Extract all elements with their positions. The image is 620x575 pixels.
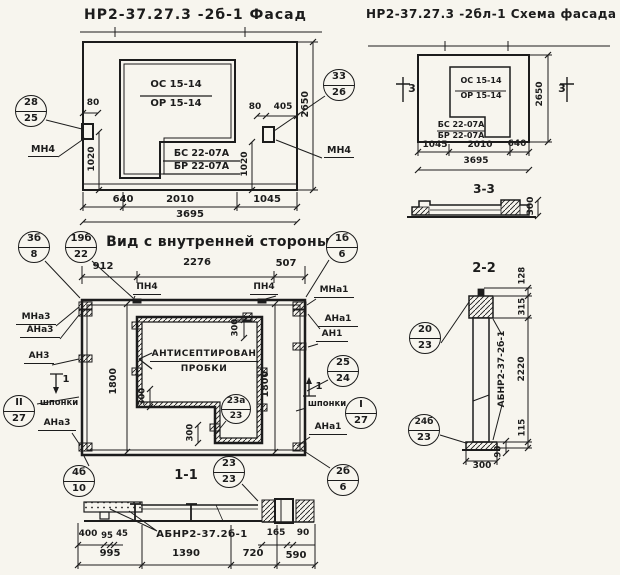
- inner-dim-507: 507: [266, 258, 306, 269]
- callout-top-value: 28: [16, 96, 46, 112]
- inner-dim-1800-right: 1800: [261, 369, 271, 399]
- section-1-1-title: 1-1: [166, 469, 206, 483]
- scheme-window-mark-bottom: ОР 15-14: [456, 92, 506, 101]
- callout-top-value: II: [4, 396, 34, 412]
- inner-dim-300-mid-left: 300: [138, 382, 147, 412]
- label-ana3-bottom: АНа3: [38, 419, 76, 431]
- callout-inner-bottom-right-2b-6: 2б 6: [327, 464, 359, 496]
- scheme-cut-mark-3-right: 3: [555, 83, 569, 95]
- label-an3: АН3: [24, 352, 54, 364]
- facade-dim-1020-left: 1020: [88, 144, 98, 174]
- section-3-3-title: 3-3: [466, 183, 502, 196]
- inner-dim-1800-left: 1800: [109, 366, 119, 396]
- s22-dim-315: 315: [518, 292, 527, 322]
- callout-top-value: 20: [410, 323, 440, 339]
- callout-top-value: 25: [328, 356, 358, 372]
- facade-dim-3695: 3695: [159, 209, 221, 220]
- s11-dim-45: 45: [113, 530, 131, 539]
- callout-facade-left-28-25: 28 25: [15, 95, 47, 127]
- callout-bottom-value: 8: [19, 248, 49, 263]
- callout-inner-25-24: 25 24: [327, 355, 359, 387]
- callout-top-value: I: [346, 398, 376, 414]
- callout-section22-20-23: 20 23: [409, 322, 441, 354]
- anchor-label-mn4-right: МН4: [324, 146, 354, 158]
- s11-dim-165: 165: [264, 529, 288, 539]
- label-an1: АН1: [316, 330, 348, 342]
- label-ana1-bottom: АНа1: [309, 423, 347, 435]
- scheme-title: НР2-37.27.3 -2бл-1 Схема фасада: [366, 8, 612, 21]
- facade-apron-mark-bottom: БР 22-07А: [163, 162, 240, 172]
- callout-top-value: 1б: [327, 232, 357, 248]
- callout-top-value: 23: [214, 457, 244, 473]
- s11-dim-720: 720: [232, 548, 274, 559]
- antiseptic-note-line2: ПРОБКИ: [150, 365, 258, 375]
- s22-dim-300: 300: [466, 462, 498, 472]
- callout-shponki-left-II-27: II 27: [3, 395, 35, 427]
- facade-title: НР2-37.27.3 -2б-1 Фасад: [78, 8, 313, 23]
- section-3-3-dim-300: 300: [527, 191, 537, 221]
- label-ana1-top: АНа1: [318, 315, 358, 327]
- facade-dim-80-right: 80: [246, 103, 264, 113]
- callout-bottom-value: 22: [66, 248, 96, 263]
- callout-bottom-value: 23: [409, 431, 439, 446]
- s11-dim-90: 90: [294, 529, 312, 539]
- section-2-2-part-label: АБНР2-37-2б-1: [498, 324, 508, 414]
- callout-bottom-value: 6: [328, 481, 358, 496]
- callout-top-value: 33: [324, 70, 354, 86]
- section-2-2-title: 2-2: [464, 262, 504, 276]
- facade-dim-405: 405: [270, 103, 296, 113]
- label-mna1: МНа1: [314, 286, 354, 298]
- facade-window-mark-top: ОС 15-14: [138, 79, 214, 90]
- facade-dim-640: 640: [92, 194, 154, 205]
- callout-bottom-value: 25: [16, 112, 46, 127]
- s11-dim-1390: 1390: [162, 548, 210, 559]
- cut-mark-1-right: 1: [313, 381, 325, 392]
- facade-dim-2650: 2650: [301, 89, 311, 119]
- cut-mark-1-left: 1: [60, 374, 72, 385]
- callout-bottom-value: 6: [327, 248, 357, 263]
- callout-top-value: 23а: [222, 395, 250, 410]
- callout-shponki-right-I-27: I 27: [345, 397, 377, 429]
- label-shponki-left: шпонки: [38, 399, 80, 408]
- s11-dim-590: 590: [277, 550, 315, 561]
- callout-top-value: 3б: [19, 232, 49, 248]
- inner-dim-300-bottom: 300: [186, 418, 195, 448]
- callout-inner-bottom-left-4b-10: 4б 10: [63, 465, 95, 497]
- section-1-1-part-label: АБНР2-37.2б-1: [152, 529, 252, 540]
- callout-top-value: 19б: [66, 232, 96, 248]
- callout-inner-top-right-1b-6: 1б 6: [326, 231, 358, 263]
- scheme-cut-mark-3-left: 3: [405, 83, 419, 95]
- label-pn4-right: ПН4: [250, 283, 278, 295]
- callout-section11-23-23: 23 23: [213, 456, 245, 488]
- facade-dim-1020-right: 1020: [241, 149, 251, 179]
- label-pn4-left: ПН4: [133, 283, 161, 295]
- label-shponki-right: шпонки: [307, 400, 347, 409]
- anchor-label-mn4-left: МН4: [28, 145, 58, 157]
- scheme-apron-mark-top: БС 22-07А: [436, 121, 486, 130]
- callout-opening-23a-23: 23а 23: [221, 394, 251, 424]
- label-ana3-top: АНа3: [20, 326, 60, 338]
- s11-dim-400: 400: [76, 530, 100, 540]
- inner-dim-300-top-right: 300: [231, 313, 240, 343]
- inner-dim-912: 912: [83, 261, 123, 272]
- callout-bottom-value: 27: [346, 414, 376, 429]
- callout-bottom-value: 26: [324, 86, 354, 101]
- callout-top-value: 4б: [64, 466, 94, 482]
- scheme-dim-2010: 2010: [462, 141, 498, 151]
- blueprint-sheet: НР2-37.27.3 -2б-1 Фасад ОС 15-14 ОР 15-1…: [0, 0, 620, 575]
- facade-dim-2010: 2010: [149, 194, 211, 205]
- callout-section22-24b-23: 24б 23: [408, 414, 440, 446]
- facade-dim-1045: 1045: [236, 194, 298, 205]
- facade-dim-80-left: 80: [84, 99, 102, 109]
- antiseptic-note-line1: АНТИСЕПТИРОВАН: [150, 350, 258, 362]
- callout-facade-right-33-26: 33 26: [323, 69, 355, 101]
- callout-bottom-value: 10: [64, 482, 94, 497]
- callout-bottom-value: 23: [214, 473, 244, 488]
- facade-apron-mark-top: БС 22-07А: [163, 149, 240, 159]
- callout-top-value: 24б: [409, 415, 439, 431]
- callout-bottom-value: 23: [410, 339, 440, 354]
- callout-inner-title-19b-22: 19б 22: [65, 231, 97, 263]
- callout-bottom-value: 23: [222, 410, 250, 424]
- callout-inner-top-left-3b-8: 3б 8: [18, 231, 50, 263]
- scheme-dim-640: 640: [503, 140, 531, 150]
- inner-dim-2276: 2276: [172, 257, 222, 268]
- callout-bottom-value: 27: [4, 412, 34, 427]
- s22-dim-115: 115: [518, 413, 527, 443]
- inner-view-title: Вид с внутренней стороны: [102, 235, 334, 250]
- scheme-dim-2650: 2650: [536, 79, 546, 109]
- callout-top-value: 2б: [328, 465, 358, 481]
- scheme-dim-3695: 3695: [458, 157, 494, 167]
- scheme-dim-1045: 1045: [419, 141, 451, 151]
- s22-dim-2220: 2220: [518, 354, 528, 384]
- callout-bottom-value: 24: [328, 372, 358, 387]
- s11-dim-995: 995: [92, 548, 128, 559]
- label-mna3: МНа3: [16, 313, 56, 325]
- s22-dim-128: 128: [518, 261, 527, 291]
- scheme-window-mark-top: ОС 15-14: [456, 77, 506, 86]
- facade-window-mark-bottom: ОР 15-14: [138, 98, 214, 109]
